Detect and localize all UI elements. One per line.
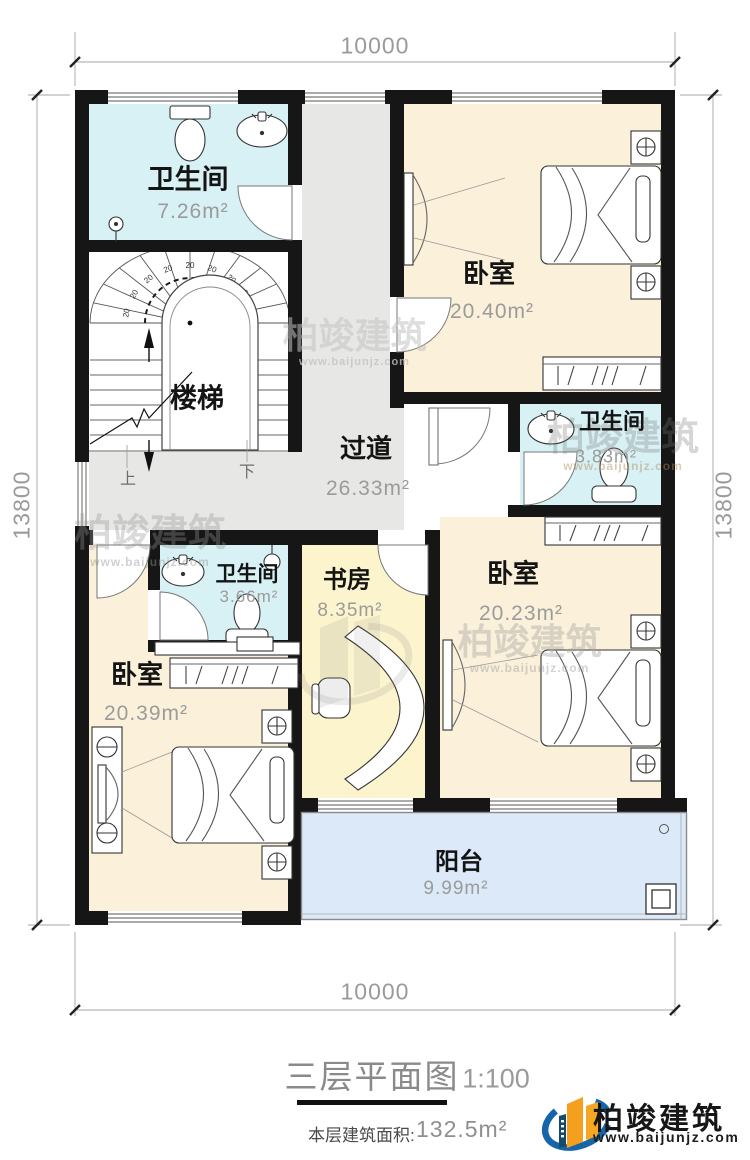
wardrobe-icon [545, 517, 661, 545]
svg-text:20: 20 [121, 307, 132, 318]
window-top-1 [108, 90, 238, 104]
svg-text:20: 20 [128, 288, 141, 301]
stairs-icon: 20 20 20 20 20 20 20 20 20 [88, 245, 290, 472]
bed-icon [541, 650, 661, 746]
bed-icon [172, 747, 294, 843]
bed-icon [541, 166, 661, 264]
room-floor-balcony [301, 812, 687, 920]
window-top-2 [305, 90, 385, 104]
nightstand-icon [262, 846, 292, 879]
window-balcony-2 [490, 798, 617, 812]
nightstand-icon [631, 615, 661, 648]
nightstand-icon [631, 131, 661, 164]
floor-area-value: 132.5m² [416, 1116, 507, 1143]
floor-area-label: 本层建筑面积: [308, 1121, 415, 1146]
svg-text:20: 20 [186, 261, 195, 270]
room-floor-corridor-horizontal [88, 452, 302, 530]
room-floor-corridor-vertical [302, 103, 390, 530]
svg-text:20: 20 [206, 263, 218, 275]
window-balcony-1 [318, 798, 413, 812]
wardrobe-icon [170, 658, 298, 688]
window-bottom [108, 911, 242, 925]
window-top-3 [452, 90, 602, 104]
nightstand-icon [631, 266, 661, 299]
balcony-drain-box [646, 884, 676, 914]
company-website: www.baijunjz.com [593, 1129, 739, 1145]
floor-plan-page: 20 20 20 20 20 20 20 20 20 [0, 0, 750, 1160]
nightstand-icon [631, 748, 661, 781]
wardrobe-icon [543, 357, 661, 390]
nightstand-icon [262, 710, 292, 743]
window-left [75, 462, 89, 526]
floor-plan-drawing: 20 20 20 20 20 20 20 20 20 [0, 0, 750, 1160]
title-underline [297, 1100, 447, 1105]
